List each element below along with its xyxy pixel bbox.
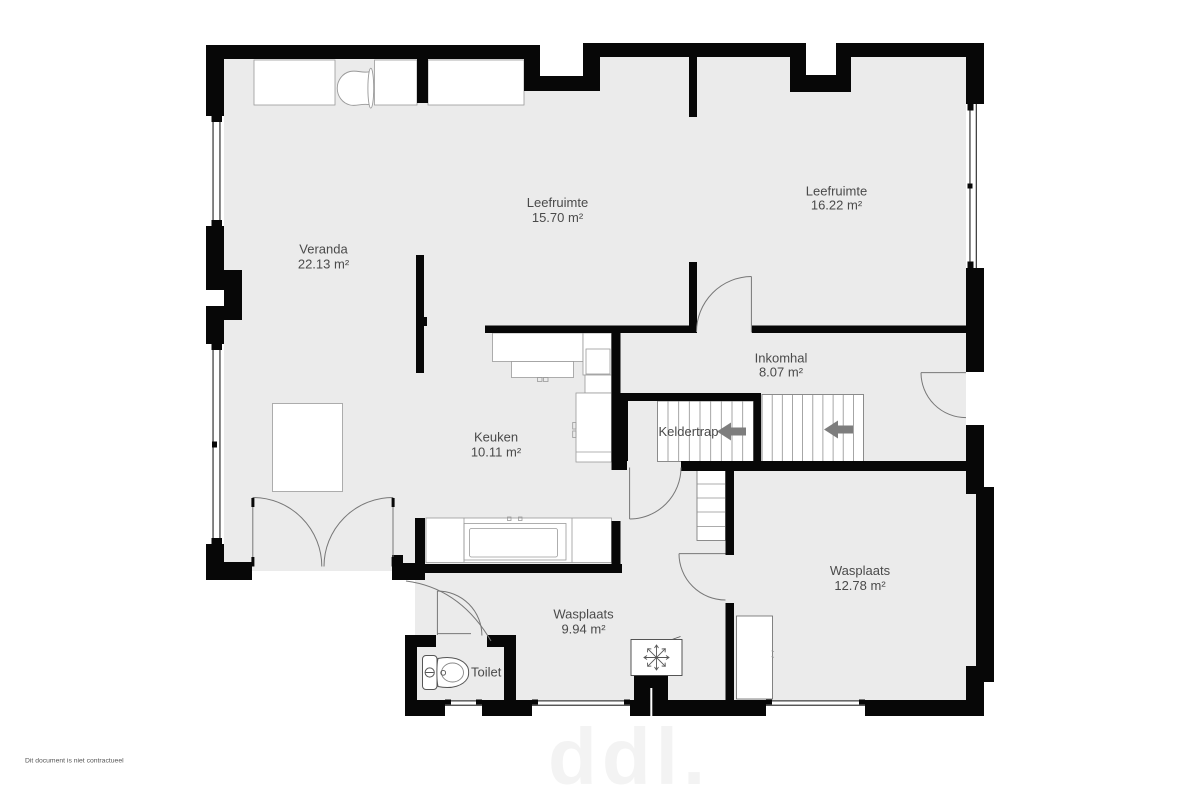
svg-text:8.07 m²: 8.07 m² [759, 365, 804, 380]
svg-text:Leefruimte: Leefruimte [806, 184, 867, 199]
svg-text:10.11 m²: 10.11 m² [471, 445, 522, 460]
svg-text:15.70 m²: 15.70 m² [532, 210, 584, 225]
svg-text:Wasplaats: Wasplaats [830, 563, 891, 578]
svg-text:12.78 m²: 12.78 m² [834, 578, 886, 593]
svg-text:Keuken: Keuken [474, 430, 518, 445]
svg-text:Wasplaats: Wasplaats [553, 607, 614, 622]
svg-text:ddl.: ddl. [548, 712, 710, 800]
svg-text:Toilet: Toilet [471, 665, 502, 680]
svg-text:Leefruimte: Leefruimte [527, 195, 588, 210]
svg-text:16.22 m²: 16.22 m² [811, 198, 863, 213]
svg-text:Keldertrap: Keldertrap [659, 424, 719, 439]
svg-text:Dit document is niet contractu: Dit document is niet contractueel [25, 758, 124, 765]
svg-text:Inkomhal: Inkomhal [755, 351, 808, 366]
svg-text:Veranda: Veranda [299, 242, 348, 257]
svg-text:22.13 m²: 22.13 m² [298, 257, 350, 272]
svg-text:9.94 m²: 9.94 m² [561, 622, 606, 637]
